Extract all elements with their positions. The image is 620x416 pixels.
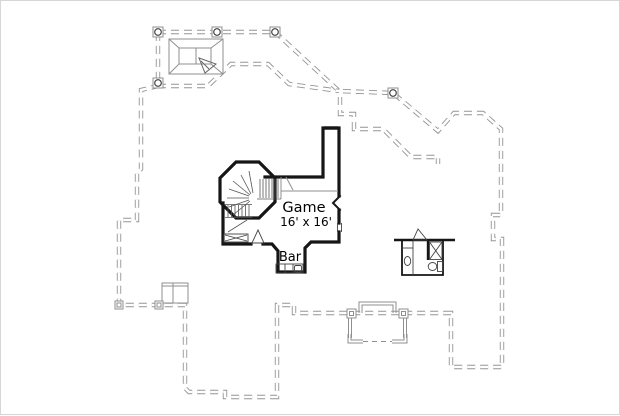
door-swing-icon xyxy=(413,229,427,240)
skylight-roof-detail xyxy=(169,39,223,74)
toilet-icon xyxy=(428,262,442,272)
column-icon xyxy=(388,88,398,98)
floor-plan-canvas: Game 16' x 16' Bar xyxy=(1,1,620,416)
ceiling-break-lines xyxy=(281,177,338,199)
bathroom xyxy=(394,229,455,275)
bay-window-footprint xyxy=(347,302,408,343)
room-size-label: 16' x 16' xyxy=(280,215,332,229)
staircase xyxy=(224,171,281,243)
floor-plan-page: Game 16' x 16' Bar xyxy=(0,0,620,415)
chimney xyxy=(162,283,188,303)
shower-icon xyxy=(430,242,443,260)
vanity-sink-icon xyxy=(402,241,413,275)
column-base-icon xyxy=(155,301,163,309)
column-icon xyxy=(153,78,163,88)
bathroom-walls xyxy=(402,240,443,275)
column-icon xyxy=(153,27,163,37)
room-name-label: Game xyxy=(282,200,325,216)
door-swing-icon xyxy=(252,230,264,243)
bar-label: Bar xyxy=(279,250,302,265)
column-icon xyxy=(212,27,222,37)
stair-landing-shelf xyxy=(224,234,248,242)
roof-step-line xyxy=(340,97,438,164)
column-base-icon xyxy=(115,301,123,309)
column-icon xyxy=(270,27,280,37)
straight-staircase xyxy=(257,179,281,199)
wall-niche xyxy=(333,196,340,210)
